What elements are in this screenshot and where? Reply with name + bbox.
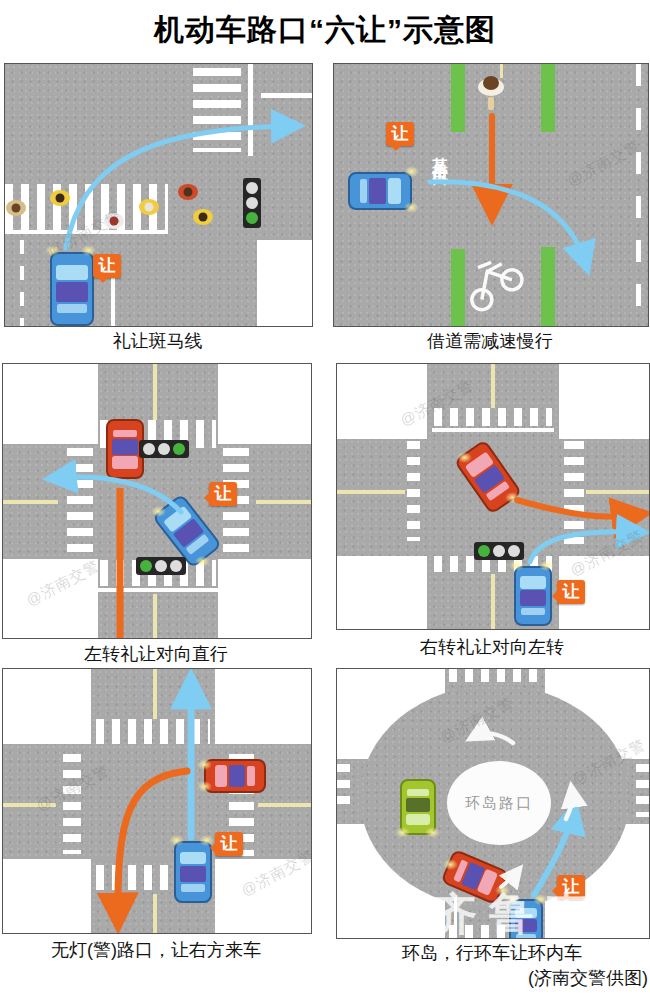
- yield-badge: 让: [557, 580, 585, 604]
- headlight-glow: [197, 759, 212, 770]
- zebra-crossing: [434, 408, 552, 426]
- headlight-glow: [539, 560, 554, 571]
- caption-roundabout: 环岛，行环车让环内车: [336, 941, 648, 965]
- center-line: [586, 490, 649, 494]
- zebra-crossing: [193, 68, 241, 152]
- caption-right-turn: 右转礼让对向左转: [336, 635, 648, 659]
- headlight-glow: [404, 166, 419, 177]
- headlight-glow: [195, 556, 210, 567]
- headlight-glow: [395, 827, 410, 838]
- center-line: [153, 594, 157, 638]
- headlight-glow: [151, 506, 166, 517]
- yield-badge: 让: [209, 482, 237, 506]
- zebra-crossing: [407, 441, 420, 541]
- panel-roundabout-scene: 环岛路口 让 齐鲁壹点 @济南交警 @济南交警: [336, 668, 650, 939]
- stop-line: [98, 588, 218, 592]
- bike-lane-stripe: [541, 64, 555, 132]
- yield-badge: 让: [386, 122, 414, 146]
- traffic-light: [474, 542, 524, 560]
- sidewalk-corner: [257, 240, 312, 326]
- panel-left-turn-scene: 让 @济南交警: [2, 363, 312, 639]
- green-lamp-on: [173, 443, 185, 455]
- zebra-crossing: [96, 719, 210, 744]
- center-line: [337, 490, 405, 494]
- pedestrian: [193, 209, 213, 225]
- green-lamp-on: [246, 212, 258, 224]
- watermark: @济南交警: [23, 556, 103, 610]
- caption-bike-lane: 借道需减速慢行: [333, 329, 647, 353]
- traffic-light: [136, 557, 186, 575]
- panel-no-light-scene: 让 @济南交警 @济南交警: [2, 668, 312, 934]
- yellow-lamp-off: [246, 197, 258, 209]
- pedestrian: [139, 199, 159, 215]
- headlight-glow: [457, 452, 472, 463]
- pedestrian: [178, 184, 198, 200]
- yield-badge: 让: [93, 254, 121, 278]
- red-lamp-off: [508, 545, 520, 557]
- center-line: [491, 364, 495, 408]
- blue-car: [50, 252, 94, 326]
- panel-crosswalk-scene: 让 @济南交警: [4, 63, 313, 327]
- curb-line: [261, 93, 312, 98]
- yellow-lamp-off: [155, 560, 167, 572]
- red-car: [204, 759, 266, 793]
- curb-line: [248, 64, 253, 156]
- traffic-light: [139, 440, 189, 458]
- page-title: 机动车路口“六让”示意图: [0, 10, 650, 51]
- headlight-glow: [404, 202, 419, 213]
- zebra-crossing: [67, 448, 93, 556]
- bike-lane-stripe: [541, 247, 555, 326]
- yellow-lamp-off: [158, 443, 170, 455]
- panel-right-turn-scene: 让 @济南交警 @济南交警: [336, 363, 650, 630]
- zebra-crossing: [564, 441, 584, 544]
- headlight-glow: [505, 492, 520, 503]
- headlight-glow: [425, 827, 440, 838]
- stop-line: [432, 428, 554, 432]
- blue-car: [348, 172, 412, 210]
- pedestrian: [50, 190, 70, 206]
- red-lamp-off: [143, 443, 155, 455]
- caption-left-turn: 左转礼让对向直行: [2, 642, 310, 666]
- headlight-glow: [197, 781, 212, 792]
- watermark: @济南交警: [564, 136, 644, 190]
- traffic-light: [243, 178, 261, 228]
- infographic-page: 机动车路口“六让”示意图 让 @济南交警 礼让斑马线: [0, 0, 650, 1000]
- green-lamp-on: [140, 560, 152, 572]
- headlight-glow: [509, 560, 524, 571]
- yellow-lamp-off: [493, 545, 505, 557]
- headlight-glow: [443, 859, 458, 870]
- center-line: [153, 669, 157, 719]
- cyclist: [476, 70, 506, 112]
- center-line: [491, 574, 495, 629]
- island-label: 环岛路口: [447, 761, 551, 845]
- caption-no-light: 无灯(警)路口，让右方来车: [2, 938, 310, 962]
- lane-dash-line: [636, 64, 641, 326]
- red-lamp-off: [246, 182, 258, 194]
- panel-bike-lane-scene: 某单位出口 让 @济南交警: [333, 63, 649, 327]
- center-line: [256, 500, 311, 504]
- center-line: [3, 500, 58, 504]
- lane-dash-line: [20, 240, 24, 326]
- center-line: [153, 364, 157, 420]
- headlight-glow: [169, 835, 184, 846]
- red-lamp-off: [170, 560, 182, 572]
- zebra-crossing: [636, 764, 649, 817]
- zebra-crossing: [63, 754, 81, 854]
- caption-crosswalk: 礼让斑马线: [4, 329, 311, 353]
- center-line: [258, 803, 311, 807]
- zebra-crossing: [449, 669, 541, 682]
- credit-line: (济南交警供图): [336, 966, 648, 990]
- bike-lane-stripe: [451, 64, 465, 132]
- zebra-crossing: [337, 764, 350, 811]
- green-lamp-on: [478, 545, 490, 557]
- pedestrian: [6, 200, 26, 216]
- center-line: [153, 894, 157, 933]
- exit-sign-label: 某单位出口: [430, 144, 450, 164]
- bike-lane-stripe: [451, 249, 465, 326]
- qilu-watermark: 齐鲁壹点: [433, 885, 650, 939]
- yield-badge: 让: [215, 832, 243, 856]
